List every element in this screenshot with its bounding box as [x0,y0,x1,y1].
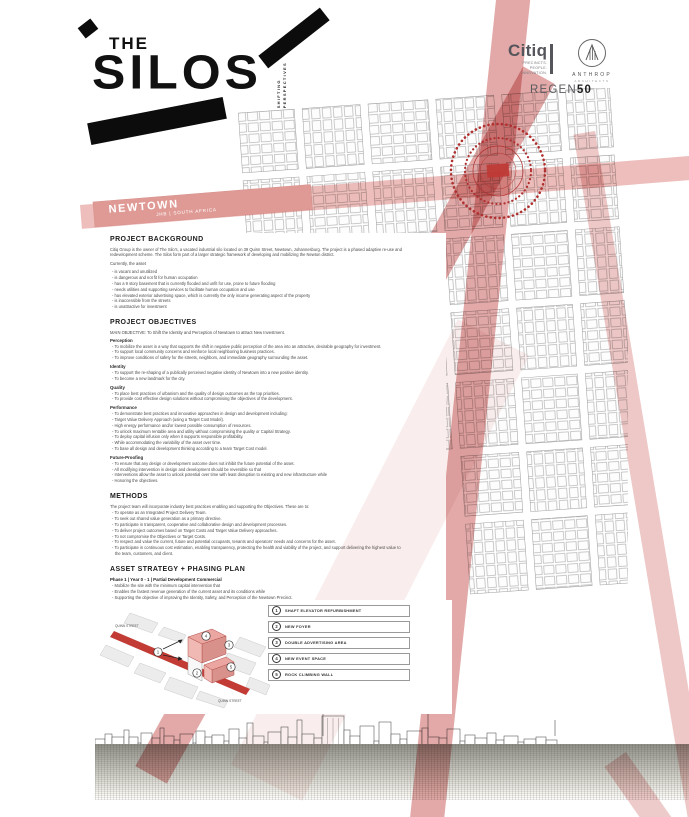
objective-group-bullets: To mobilize the asset in a way that supp… [110,344,402,361]
citiq-logo: Citiq PRECINCTS. PEOPLE. INNOVATION. [508,42,553,77]
marker-3: 3 [225,641,233,649]
objectives-heading: PROJECT OBJECTIVES [110,319,402,326]
objective-group: Perception To mobilize the asset in a wa… [110,338,402,361]
phase-title: Phase 1 | Year 0 - 1 | Partial Developme… [110,577,402,582]
brand-tagline-line2: PERSPECTIVES [282,62,287,108]
site-target-rings [440,114,560,234]
objective-group: Future-Proofing To ensure that any desig… [110,455,402,484]
legend-label: SHAFT ELEVATOR REFURBISHMENT [285,608,361,613]
background-currently: Currently, the asset [110,261,402,266]
objective-group-bullets: To place best practices of urbanism and … [110,391,402,403]
legend-number-icon: 4 [272,654,281,663]
brand-logo: THE SILOS SHIFTING PERSPECTIVES [86,22,301,152]
legend-label: DOUBLE ADVERTISING AREA [285,640,347,645]
objective-group-title: Quality [110,385,402,390]
legend-label: NEW EVENT SPACE [285,656,326,661]
marker-2: 2 [193,669,201,677]
legend-number-icon: 3 [272,638,281,647]
background-bullet: is unattractive for investment [110,304,402,310]
objective-group-bullets: To ensure that any design or development… [110,461,402,484]
objective-bullet: Honoring the objectives. [110,478,402,484]
anthrop-subtitle: ARCHITECTS [566,79,618,83]
brand-silos: SILOS [92,48,262,97]
objective-group: Performance To demonstrate best practice… [110,405,402,451]
anthrop-logo: ANTHROP ARCHITECTS [566,38,618,83]
brand-tagline: SHIFTING PERSPECTIVES [276,62,287,108]
skyline-ground-texture [95,744,689,800]
objectives-main: MAIN OBJECTIVE: To Shift the Identity an… [110,330,402,335]
regen50-logo: REGEN50 [502,84,620,96]
silo-site-marker [487,163,510,178]
legend-label: ROCK CLIMBING WALL [285,672,333,677]
objective-bullet: To improve conditions of safety for the … [110,355,402,361]
methods-heading: METHODS [110,493,402,500]
legend-number-icon: 5 [272,670,281,679]
citiq-wordmark: Citiq [508,42,547,59]
objective-group-bullets: To support the re-shaping of a publicall… [110,370,402,382]
objective-bullet: To provide cost effective design solutio… [110,396,402,402]
anthrop-wordmark: ANTHROP [566,72,618,78]
isometric-site-diagram: QUINN STREET QUINN STREET 1 [100,604,272,714]
street-label-bottom: QUINN STREET [218,699,242,703]
citiq-bar-icon [550,44,553,74]
logo-slash-corner-icon [78,18,99,38]
objective-group-title: Identity [110,364,402,369]
brand-tagline-line1: SHIFTING [276,62,281,108]
regen-number: 50 [577,84,592,96]
intervention-diagram-panel: QUINN STREET QUINN STREET 1 [100,600,452,714]
phasing-heading: ASSET STRATEGY + PHASING PLAN [110,566,402,573]
methods-intro: The project team will incorporate indust… [110,504,402,510]
logo-slash-top-icon [258,8,329,69]
legend-number-icon: 2 [272,622,281,631]
methods-bullet: To participate in continuous cost estima… [110,545,402,557]
marker-1: 1 [154,648,162,656]
poster: THE SILOS SHIFTING PERSPECTIVES Citiq PR… [0,0,689,817]
background-bullets: is vacant and unutilizedis dangerous and… [110,269,402,310]
objective-groups: Perception To mobilize the asset in a wa… [110,338,402,484]
objective-group-title: Perception [110,338,402,343]
street-label-top: QUINN STREET [115,624,139,628]
regen-text: REGEN [530,84,577,96]
citiq-tagline-3: INNOVATION. [521,71,547,76]
background-intro: Citiq Group is the owner of The Silo's, … [110,247,402,259]
background-heading: PROJECT BACKGROUND [110,236,402,243]
objective-group-title: Performance [110,405,402,410]
logo-slash-bottom-icon [87,97,227,145]
marker-4: 4 [202,632,210,640]
diagram-legend: 1 SHAFT ELEVATOR REFURBISHMENT 2 NEW FOY… [268,605,410,681]
methods-bullets: To operate as an Integrated Project Deli… [110,510,402,557]
legend-row: 2 NEW FOYER [268,621,410,633]
marker-5: 5 [227,663,235,671]
anthrop-emblem-icon [576,38,608,70]
legend-row: 1 SHAFT ELEVATOR REFURBISHMENT [268,605,410,617]
objective-group: Quality To place best practices of urban… [110,385,402,402]
objective-group: Identity To support the re-shaping of a … [110,364,402,381]
legend-number-icon: 1 [272,606,281,615]
objective-group-title: Future-Proofing [110,455,402,460]
legend-label: NEW FOYER [285,624,311,629]
objective-group-bullets: To demonstrate best practices and innova… [110,411,402,452]
objective-bullet: To become a new landmark for the city. [110,376,402,382]
legend-row: 5 ROCK CLIMBING WALL [268,669,410,681]
legend-row: 4 NEW EVENT SPACE [268,653,410,665]
objective-bullet: To base all design and development think… [110,446,402,452]
legend-row: 3 DOUBLE ADVERTISING AREA [268,637,410,649]
